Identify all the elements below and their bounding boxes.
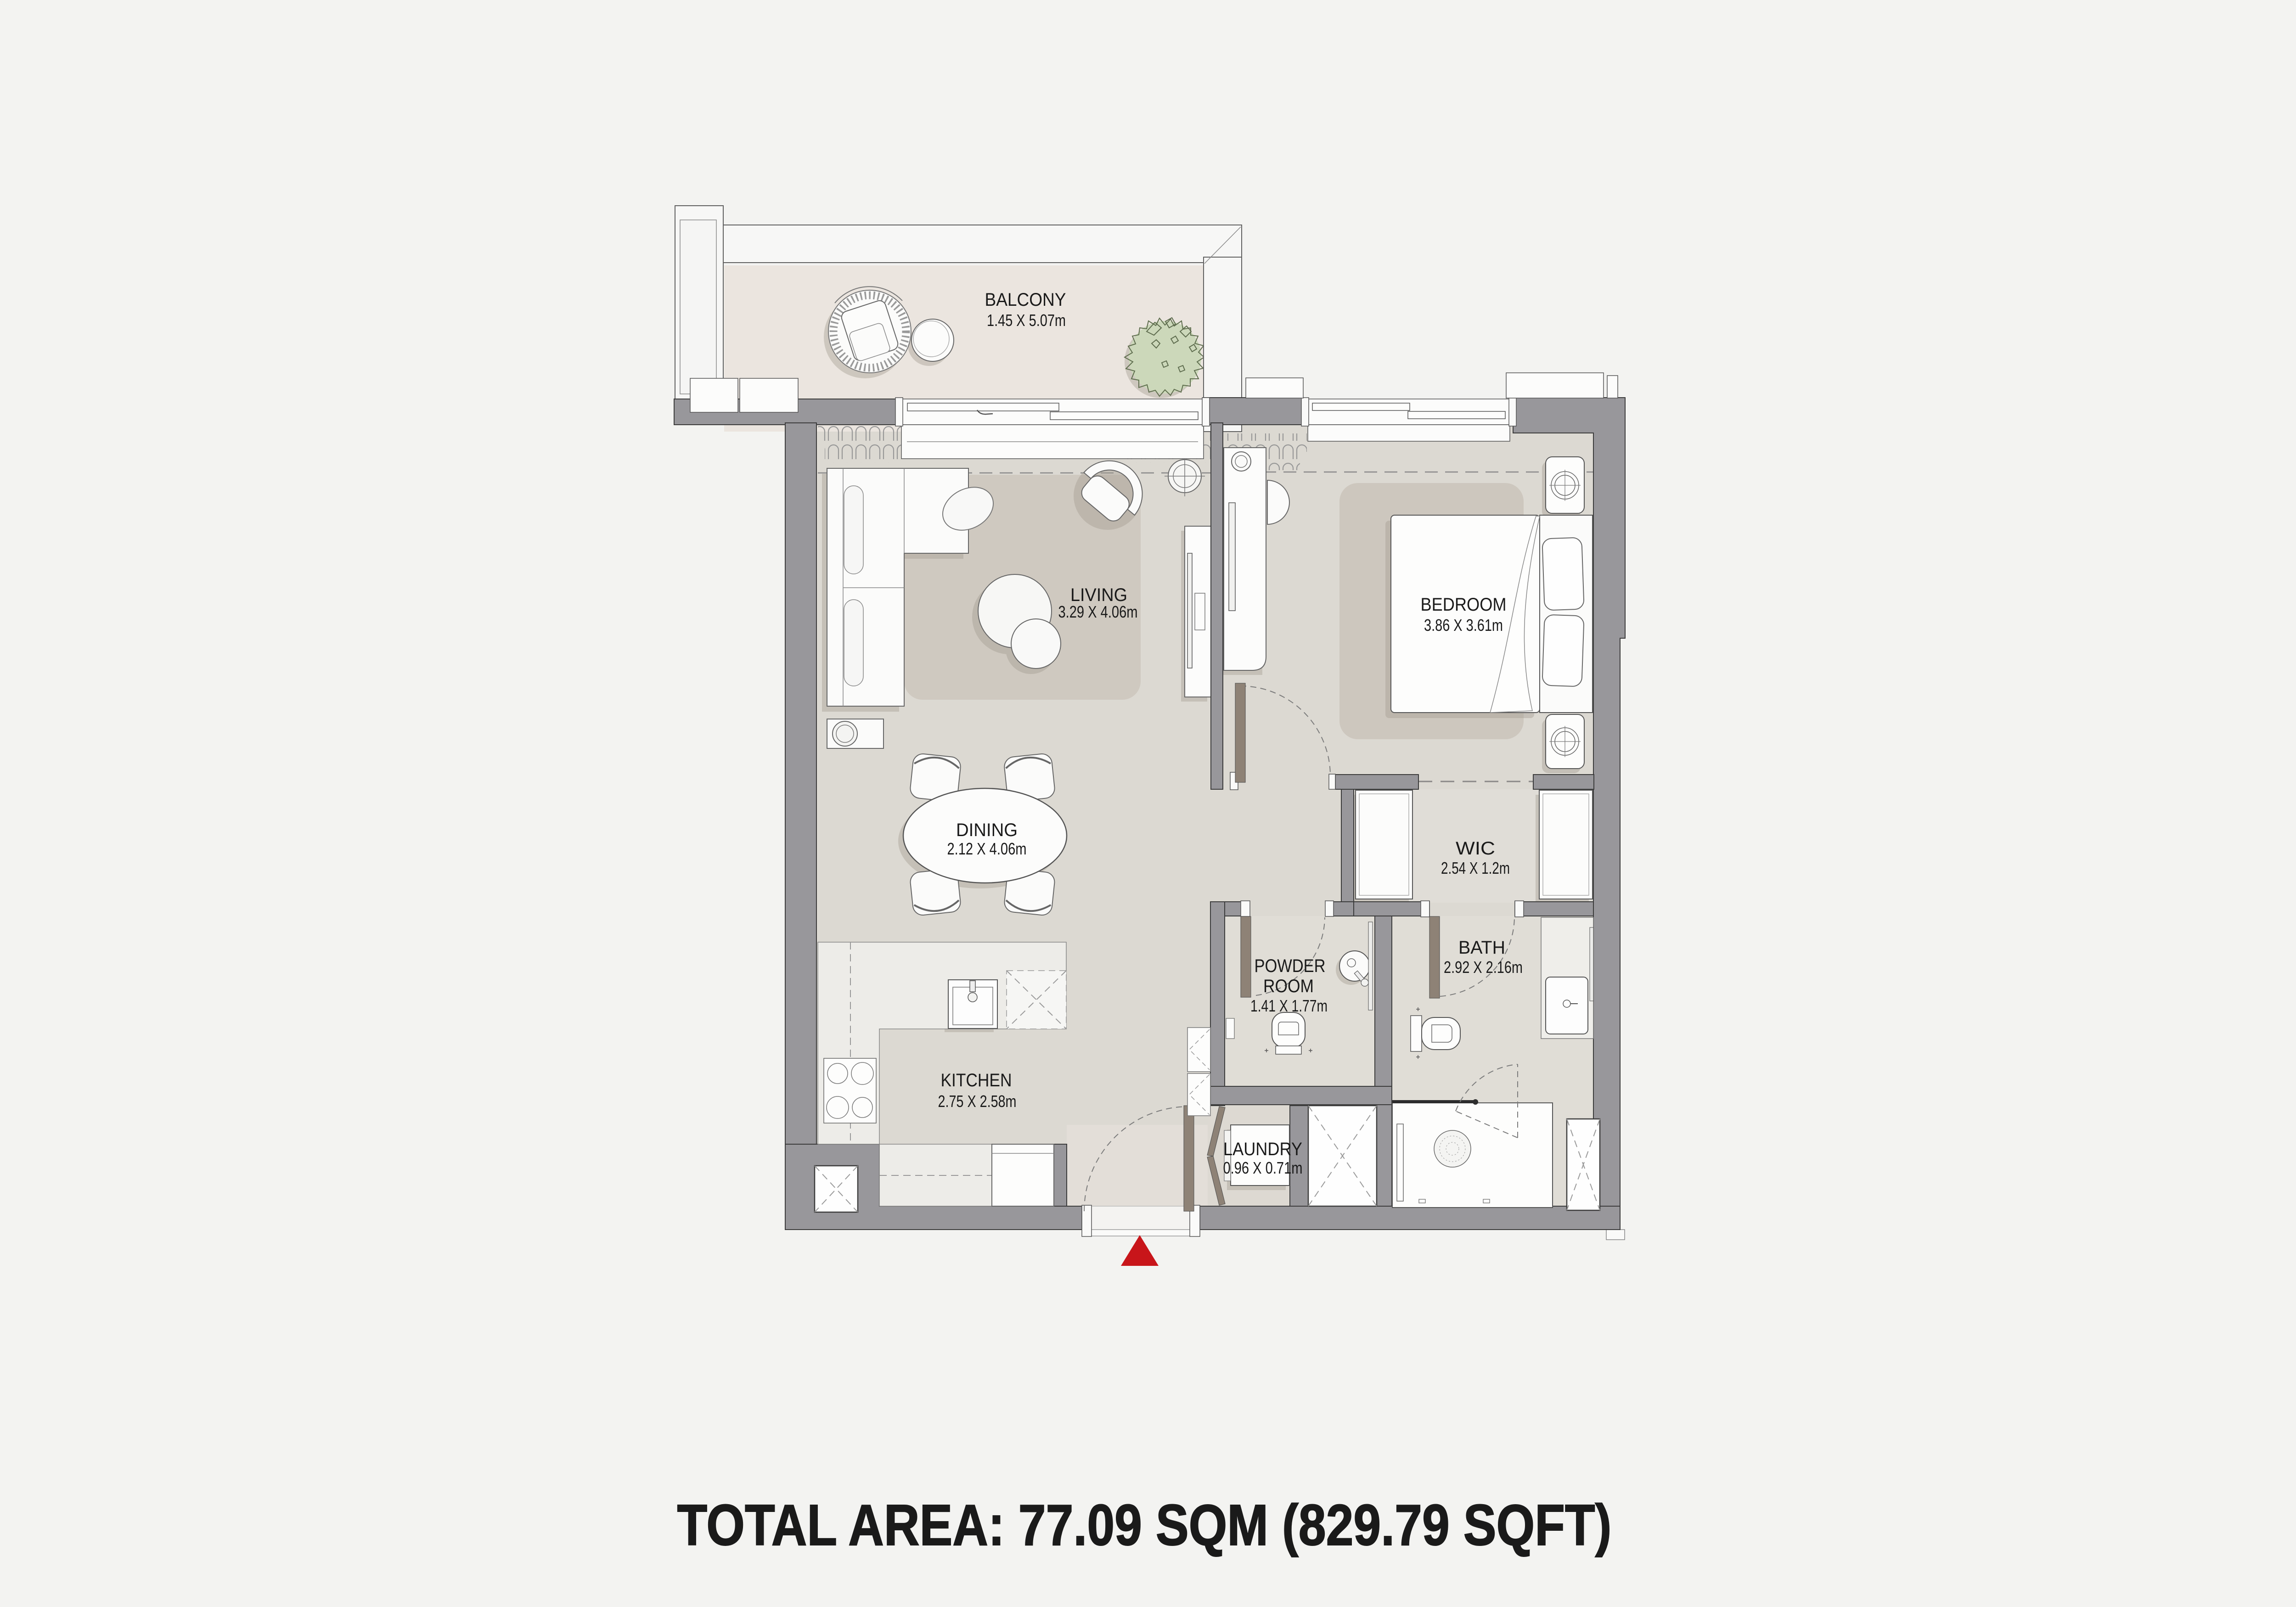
svg-text:ROOM: ROOM: [1263, 976, 1314, 996]
svg-text:LAUNDRY: LAUNDRY: [1223, 1139, 1302, 1159]
svg-text:BALCONY: BALCONY: [985, 290, 1066, 310]
svg-text:KITCHEN: KITCHEN: [941, 1070, 1012, 1090]
svg-text:POWDER: POWDER: [1255, 956, 1326, 976]
svg-text:1.45 X 5.07m: 1.45 X 5.07m: [987, 311, 1066, 330]
svg-text:TOTAL AREA: 77.09 SQM (829.79: TOTAL AREA: 77.09 SQM (829.79 SQFT): [677, 1493, 1612, 1557]
svg-text:DINING: DINING: [956, 820, 1018, 840]
svg-text:2.54 X 1.2m: 2.54 X 1.2m: [1441, 859, 1510, 877]
svg-text:3.86 X 3.61m: 3.86 X 3.61m: [1424, 616, 1503, 635]
svg-text:BATH: BATH: [1458, 938, 1505, 958]
svg-text:BEDROOM: BEDROOM: [1421, 595, 1507, 615]
svg-text:WIC: WIC: [1456, 838, 1495, 859]
svg-text:3.29 X 4.06m: 3.29 X 4.06m: [1058, 602, 1138, 621]
svg-text:1.41 X 1.77m: 1.41 X 1.77m: [1250, 996, 1328, 1015]
svg-text:2.92 X 2.16m: 2.92 X 2.16m: [1444, 958, 1523, 977]
svg-text:0.96 X 0.71m: 0.96 X 0.71m: [1223, 1158, 1303, 1177]
svg-text:2.12 X 4.06m: 2.12 X 4.06m: [947, 839, 1027, 858]
svg-text:2.75 X 2.58m: 2.75 X 2.58m: [938, 1092, 1017, 1111]
